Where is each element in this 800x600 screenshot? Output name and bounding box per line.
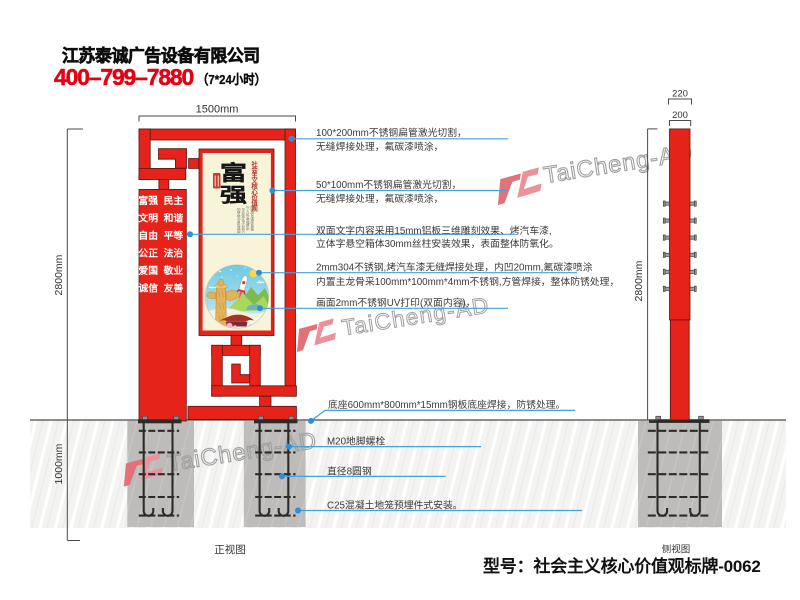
svg-text:平等: 平等 [164, 229, 184, 242]
svg-text:社会主义核心价值观: 社会主义核心价值观 [250, 160, 258, 213]
svg-text:2mm304不锈钢,烤汽车漆无缝焊接处理，内凹20mm,氟碳: 2mm304不锈钢,烤汽车漆无缝焊接处理，内凹20mm,氟碳漆喷涂 [316, 261, 593, 274]
svg-text:富强: 富强 [138, 194, 158, 207]
svg-text:C25混凝土地笼预埋件式安装。: C25混凝土地笼预埋件式安装。 [327, 499, 463, 512]
svg-text:爱国: 爱国 [138, 264, 158, 277]
svg-text:侧视图: 侧视图 [662, 544, 691, 556]
svg-text:自由: 自由 [138, 229, 158, 242]
svg-text:50*100mm不锈钢扁管激光切割，: 50*100mm不锈钢扁管激光切割， [316, 178, 461, 191]
svg-text:和谐: 和谐 [164, 212, 184, 225]
svg-text:1000mm: 1000mm [53, 443, 65, 484]
svg-text:直径8圆钢: 直径8圆钢 [327, 464, 372, 477]
svg-text:立体字悬空箱体30mm丝柱安装效果，表面整体防氧化。: 立体字悬空箱体30mm丝柱安装效果，表面整体防氧化。 [316, 237, 559, 250]
svg-text:兴人民幸福是中: 兴人民幸福是中 [246, 205, 250, 232]
svg-text:内置主龙骨采100mm*100mm*4mm不锈钢,方管焊接，: 内置主龙骨采100mm*100mm*4mm不锈钢,方管焊接，整体防锈处理， [316, 275, 619, 288]
svg-text:友善: 友善 [163, 282, 184, 295]
svg-text:1500mm: 1500mm [196, 104, 239, 116]
svg-text:画面2mm不锈钢UV打印(双面内容)，: 画面2mm不锈钢UV打印(双面内容)， [316, 296, 475, 309]
svg-text:2800mm: 2800mm [633, 260, 645, 301]
svg-text:正视图: 正视图 [214, 543, 246, 556]
svg-text:江苏泰诚广告设备有限公司: 江苏泰诚广告设备有限公司 [62, 46, 260, 66]
svg-text:富: 富 [220, 161, 247, 185]
svg-text:400–799–7880: 400–799–7880 [54, 64, 194, 90]
svg-text:诚信: 诚信 [138, 282, 158, 295]
svg-text:无缝焊接处理，氟碳漆喷涂，: 无缝焊接处理，氟碳漆喷涂， [316, 192, 443, 205]
svg-text:文明: 文明 [138, 212, 158, 225]
svg-text:的梦想富民强国: 的梦想富民强国 [237, 207, 241, 234]
svg-text:强: 强 [220, 184, 248, 206]
svg-text:双面文字内容采用15mm铝板三维雕刻效果、烤汽车漆,: 双面文字内容采用15mm铝板三维雕刻效果、烤汽车漆, [316, 224, 552, 237]
svg-text:无缝焊接处理，氟碳漆喷涂，: 无缝焊接处理，氟碳漆喷涂， [316, 140, 443, 153]
svg-text:（7*24小时）: （7*24小时） [197, 71, 266, 87]
svg-text:民主: 民主 [164, 194, 184, 207]
svg-text:国家富强民族振: 国家富强民族振 [251, 205, 255, 232]
svg-text:公正: 公正 [138, 248, 158, 260]
svg-text:华民族伟大复兴: 华民族伟大复兴 [242, 207, 246, 234]
svg-text:M20地脚螺栓: M20地脚螺栓 [327, 435, 385, 448]
svg-text:型号：社会主义核心价值观标牌-0062: 型号：社会主义核心价值观标牌-0062 [483, 556, 761, 576]
svg-text:200: 200 [672, 110, 688, 121]
svg-text:100*200mm不锈钢扁管激光切割，: 100*200mm不锈钢扁管激光切割， [316, 126, 467, 139]
svg-text:2800mm: 2800mm [53, 254, 65, 295]
svg-text:敬业: 敬业 [163, 264, 184, 277]
svg-text:法治: 法治 [164, 247, 184, 260]
svg-text:底座600mm*800mm*15mm钢板底座焊接，防锈处理。: 底座600mm*800mm*15mm钢板底座焊接，防锈处理。 [328, 398, 565, 411]
svg-text:220: 220 [672, 89, 688, 100]
